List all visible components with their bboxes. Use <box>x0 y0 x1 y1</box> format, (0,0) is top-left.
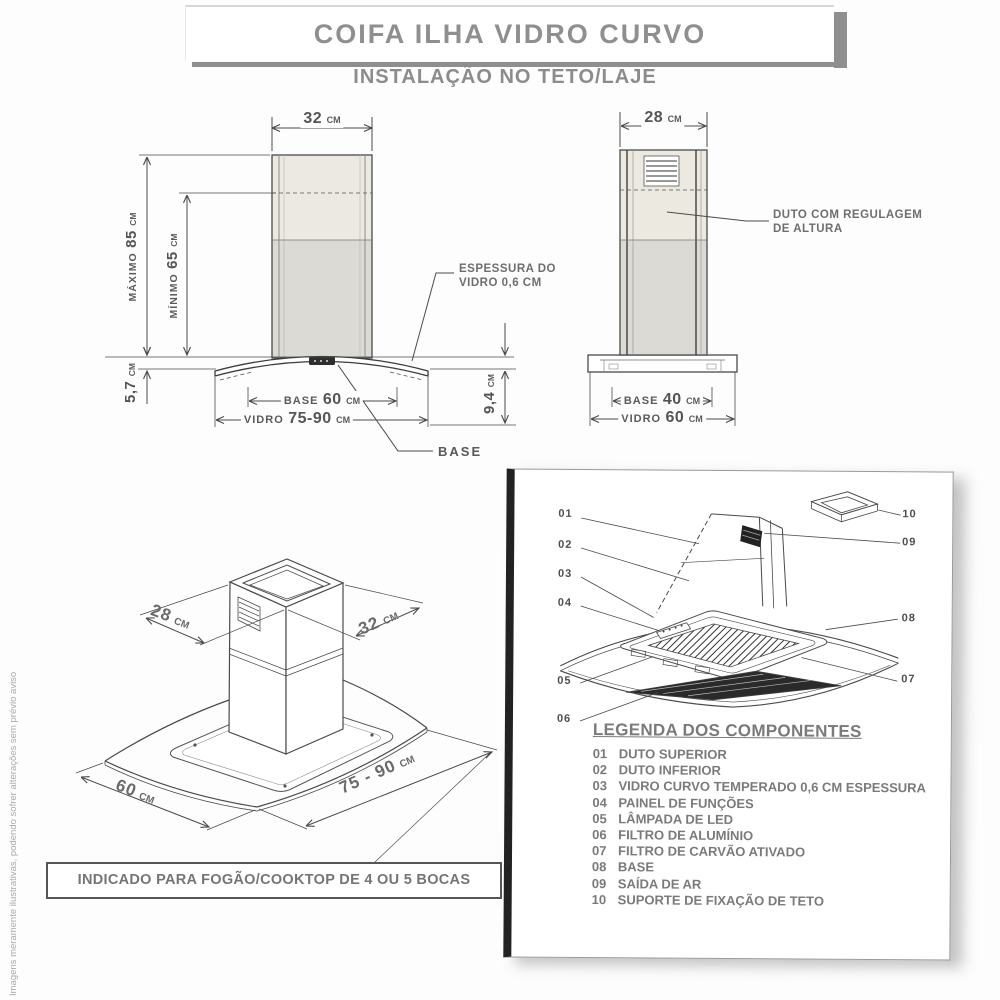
side-view-base <box>588 355 737 372</box>
callout-06: 06 <box>557 713 571 725</box>
side-base-width-dim: BASE 40 CM <box>621 391 703 409</box>
front-overlap-dim: 5,7 CM <box>122 360 140 406</box>
callout-07: 07 <box>901 673 915 685</box>
duct-adjustment-note: DUTO COM REGULAGEM DE ALTURA <box>773 208 922 236</box>
front-glass-width-dim: VIDRO 75-90 CM <box>241 410 353 428</box>
front-view-chimney <box>272 155 372 358</box>
glass-thickness-note: ESPESSURA DO VIDRO 0,6 CM <box>459 262 556 290</box>
disclaimer-text: Imagens meramente ilustrativas, podendo … <box>8 672 19 996</box>
header-shadow-right <box>834 12 847 68</box>
base-callout-label: BASE <box>438 444 482 459</box>
callout-02: 02 <box>558 539 572 551</box>
page-subtitle: INSTALAÇÃO NO TETO/LAJE <box>250 66 760 89</box>
vent-grille <box>644 156 679 186</box>
front-min-height-dim: MÍNIMO 65 CM <box>164 231 182 322</box>
callout-09: 09 <box>902 536 916 548</box>
side-glass-width-dim: VIDRO 60 CM <box>618 409 706 427</box>
ceiling-bracket-part <box>811 492 877 522</box>
front-max-height-dim: MÁXIMO 85 CM <box>123 210 141 305</box>
callout-04: 04 <box>558 597 572 609</box>
callout-05: 05 <box>557 675 571 687</box>
air-outlet-part <box>740 525 762 547</box>
exploded-components-panel: 01 02 03 04 05 06 07 08 09 10 LEGENDA DO… <box>503 468 953 960</box>
callout-10: 10 <box>902 508 916 520</box>
glass-thickness-leader <box>412 273 454 361</box>
components-legend: LEGENDA DOS COMPONENTES 01DUTO SUPERIOR … <box>592 720 943 910</box>
duct-part <box>657 513 788 613</box>
side-top-width-dim: 28 CM <box>641 109 684 127</box>
callout-08: 08 <box>902 612 916 624</box>
front-view-glass <box>215 357 428 381</box>
legend-item: 10SUPORTE DE FIXAÇÃO DE TETO <box>592 892 942 911</box>
header-bar: COIFA ILHA VIDRO CURVO <box>185 5 834 62</box>
callout-03: 03 <box>558 568 572 580</box>
legend-title: LEGENDA DOS COMPONENTES <box>593 720 943 742</box>
page-title: COIFA ILHA VIDRO CURVO <box>186 7 834 62</box>
iso-view <box>76 559 497 862</box>
front-base-width-dim: BASE 60 CM <box>281 391 363 409</box>
front-glass-drop-dim: 9,4 CM <box>481 371 499 417</box>
callout-01: 01 <box>558 508 572 520</box>
base-part <box>620 610 827 680</box>
front-top-width-dim: 32 CM <box>300 110 343 128</box>
side-view-chimney <box>620 150 707 355</box>
cooktop-note-box: INDICADO PARA FOGÃO/COOKTOP DE 4 OU 5 BO… <box>46 862 502 899</box>
